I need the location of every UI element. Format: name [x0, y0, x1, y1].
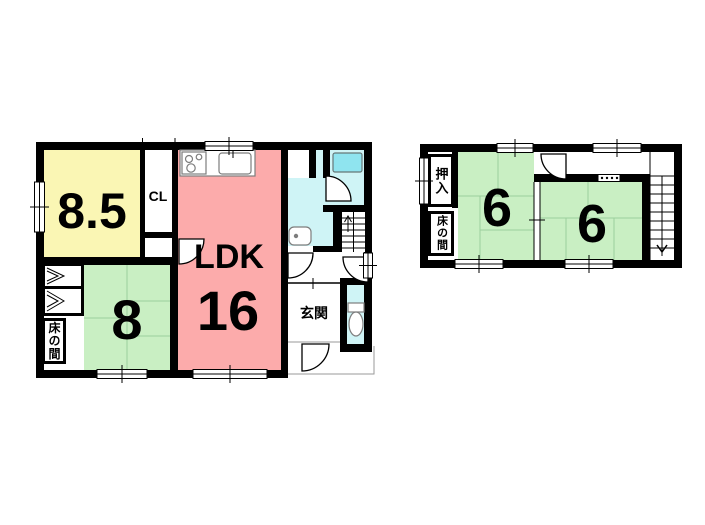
wall-ldk-right — [281, 150, 288, 370]
toilet-tank-icon — [348, 303, 364, 312]
wall-under-bath — [323, 205, 372, 212]
wall-outer-top-2f — [420, 144, 682, 152]
floor-plan-canvas: 8.5 CL LDK 16 8 玄関 床の間 押入 床の間 6 6 — [0, 0, 705, 525]
opening-dot — [601, 177, 603, 179]
wall-room6b-right — [642, 174, 650, 260]
label-room-6a: 6 — [482, 181, 512, 235]
wall-washroom-stub — [309, 150, 316, 178]
wall-outer-right — [364, 142, 372, 352]
closet-room8 — [42, 263, 84, 316]
floor-plan-drawing — [0, 0, 705, 525]
label-room-6b: 6 — [577, 197, 607, 251]
sink-icon — [219, 153, 251, 174]
washroom-closet — [288, 150, 309, 178]
wall-outer-top — [36, 142, 372, 150]
label-ldk-16: 16 — [197, 283, 259, 339]
wall-yellow-cl — [140, 150, 145, 257]
fusuma-slit — [534, 182, 540, 260]
label-genkan: 玄関 — [300, 306, 328, 320]
wall-room6b-top2 — [620, 174, 642, 182]
label-tokonoma-1f: 床の間 — [48, 322, 60, 361]
washbasin-icon — [289, 227, 311, 245]
bathtub-icon — [333, 153, 362, 172]
door-arc-entrance-icon — [302, 344, 329, 371]
label-cl: CL — [149, 189, 168, 203]
wall-oshiire-right — [452, 152, 458, 208]
wall-toilet-left — [340, 285, 347, 344]
label-ldk: LDK — [194, 240, 264, 274]
stairs-1f — [342, 212, 365, 252]
opening-dot — [606, 177, 608, 179]
kitchen-counter — [180, 147, 255, 176]
wall-bath-left — [323, 150, 330, 178]
wall-cl-bar — [145, 232, 172, 238]
label-room-8: 8 — [111, 292, 142, 348]
label-tokonoma-2f: 床の間 — [436, 215, 447, 251]
toilet-bowl-icon — [349, 312, 363, 336]
wall-outer-right-2f — [674, 144, 682, 268]
opening-dot — [616, 177, 618, 179]
wall-toilet-bottom — [340, 344, 372, 352]
label-oshiire-2f: 押入 — [435, 167, 448, 195]
wall-green-ldk — [170, 257, 178, 370]
washbasin-drain-icon — [294, 234, 298, 238]
label-room-8_5: 8.5 — [57, 186, 127, 236]
wall-cl-kitchen — [172, 150, 178, 257]
wall-washroom-bottom — [313, 246, 342, 252]
building-2f — [415, 139, 682, 273]
opening-dot — [611, 177, 613, 179]
